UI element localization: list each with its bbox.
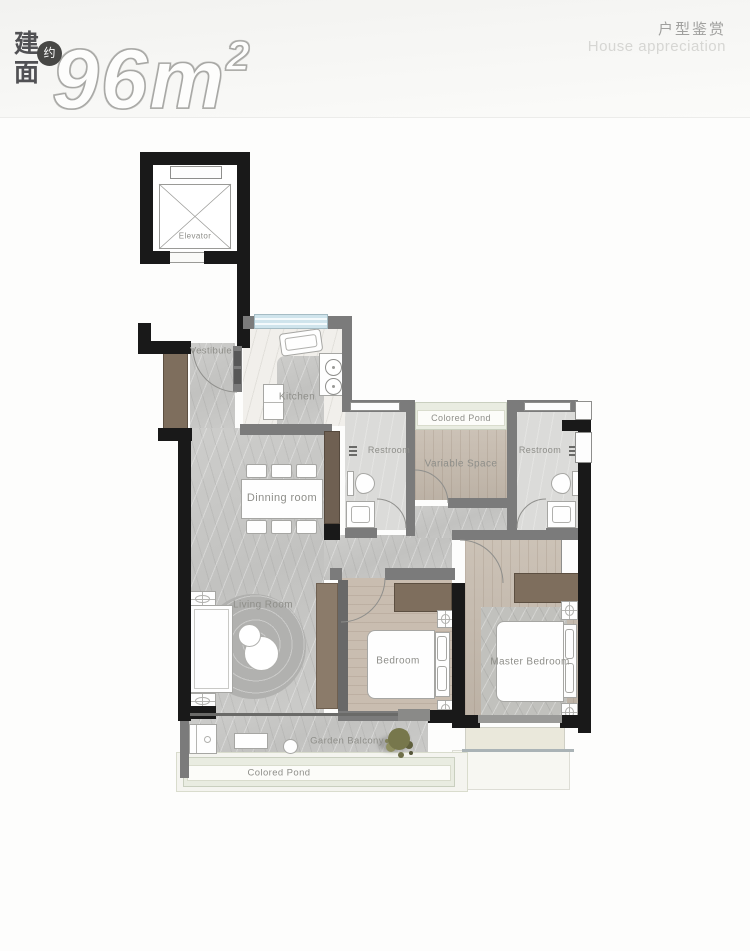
living-label: Living Room <box>233 600 293 611</box>
pillow <box>565 663 574 693</box>
area-label-cn: 建 面 <box>14 30 40 88</box>
burner-icon <box>325 378 342 395</box>
partition-wall <box>330 568 342 580</box>
dining-chair <box>296 520 317 534</box>
partition-wall <box>448 498 507 508</box>
elevator-label: Elevator <box>179 232 212 241</box>
burner-icon <box>325 359 342 376</box>
partition-wall <box>385 568 455 580</box>
balcony-stool <box>283 739 298 754</box>
washer-door-line <box>196 725 197 753</box>
restroom-left-label: Restroom <box>368 445 410 455</box>
restroom-right-window <box>524 402 571 411</box>
floor-plan-page: 建 面 约 96m2 户型鉴赏 House appreciation <box>0 0 750 951</box>
wall <box>324 522 340 540</box>
elevator-door-sill <box>170 252 204 263</box>
section-title-en: House appreciation <box>588 38 726 55</box>
wall <box>178 428 191 721</box>
plant-icon <box>388 728 410 750</box>
wall <box>138 341 191 354</box>
side-window <box>575 432 592 463</box>
pillow <box>565 629 574 659</box>
wall <box>562 420 590 431</box>
bedroom-label: Bedroom <box>376 656 419 667</box>
dining-chair <box>271 464 292 478</box>
dining-chair <box>246 520 267 534</box>
balcony-door-track <box>190 713 430 716</box>
toilet-tank <box>347 471 354 496</box>
wall <box>452 583 465 727</box>
bathroom-sink <box>346 501 375 528</box>
sliding-door-leaf <box>234 369 241 384</box>
bathroom-sink <box>547 501 576 528</box>
washer-drum-icon <box>204 736 211 743</box>
elevator-counterweight <box>170 166 222 179</box>
vestibule-floor <box>190 343 235 433</box>
corridor-cabinet-wall <box>324 431 340 524</box>
wall <box>204 251 250 264</box>
header-band: 建 面 约 96m2 户型鉴赏 House appreciation <box>0 0 750 118</box>
balcony-door-block <box>398 709 430 721</box>
area-char-2: 面 <box>14 59 40 88</box>
sofa <box>190 605 233 693</box>
partition-wall <box>406 400 415 536</box>
area-exponent: 2 <box>226 32 251 79</box>
terrace-outline <box>452 750 570 790</box>
restroom-right-label: Restroom <box>519 445 561 455</box>
wall <box>578 420 591 733</box>
entry-cabinet <box>163 350 188 430</box>
partition-wall <box>342 316 352 408</box>
partition-wall <box>452 530 578 540</box>
dining-label: Dinning room <box>247 492 317 504</box>
side-window <box>575 401 592 420</box>
variable-space-label: Variable Space <box>425 459 498 470</box>
restroom-left-window <box>350 402 400 411</box>
partition-wall <box>507 400 517 536</box>
pillow <box>437 636 447 661</box>
pillow <box>437 666 447 691</box>
balcony-label: Garden Balcony <box>310 736 384 747</box>
wall <box>560 715 591 728</box>
wall <box>237 264 250 348</box>
wall <box>237 152 250 264</box>
wall <box>428 710 454 723</box>
wall <box>140 152 250 165</box>
master-bay-window-line <box>462 749 574 752</box>
tv-cabinet <box>316 583 338 709</box>
dining-chair <box>296 464 317 478</box>
coffee-table-small <box>238 624 261 647</box>
area-value: 96m2 <box>52 0 251 112</box>
pond-top-label: Colored Pond <box>431 413 491 423</box>
partition-wall <box>240 424 332 435</box>
master-wardrobe <box>514 573 580 603</box>
approx-badge: 约 <box>37 41 62 66</box>
bedroom-wardrobe <box>394 583 452 612</box>
nightstand <box>561 601 578 620</box>
dining-chair <box>271 520 292 534</box>
toilet-bowl <box>551 473 571 494</box>
master-bay-window <box>465 727 565 751</box>
partition-wall <box>338 580 348 713</box>
sliding-door-leaf <box>234 351 241 366</box>
section-title-cn: 户型鉴赏 <box>658 18 726 39</box>
wall <box>452 715 480 728</box>
washer <box>189 724 217 754</box>
partition-wall <box>345 528 377 538</box>
bay-sill <box>478 715 562 723</box>
balcony-bench <box>234 733 268 749</box>
wall <box>140 251 170 264</box>
master-bedroom-label: Master Bedroom <box>490 657 570 668</box>
kitchen-label: Kitchen <box>279 392 315 403</box>
dining-chair <box>246 464 267 478</box>
shower-icon <box>349 445 357 456</box>
partition-wall <box>180 721 189 778</box>
vestibule-label: Vestibule <box>190 346 232 357</box>
kitchen-window <box>254 314 328 329</box>
colored-pond-bottom-strip <box>187 765 451 781</box>
pond-bottom-label: Colored Pond <box>248 768 311 779</box>
wall <box>140 152 153 264</box>
